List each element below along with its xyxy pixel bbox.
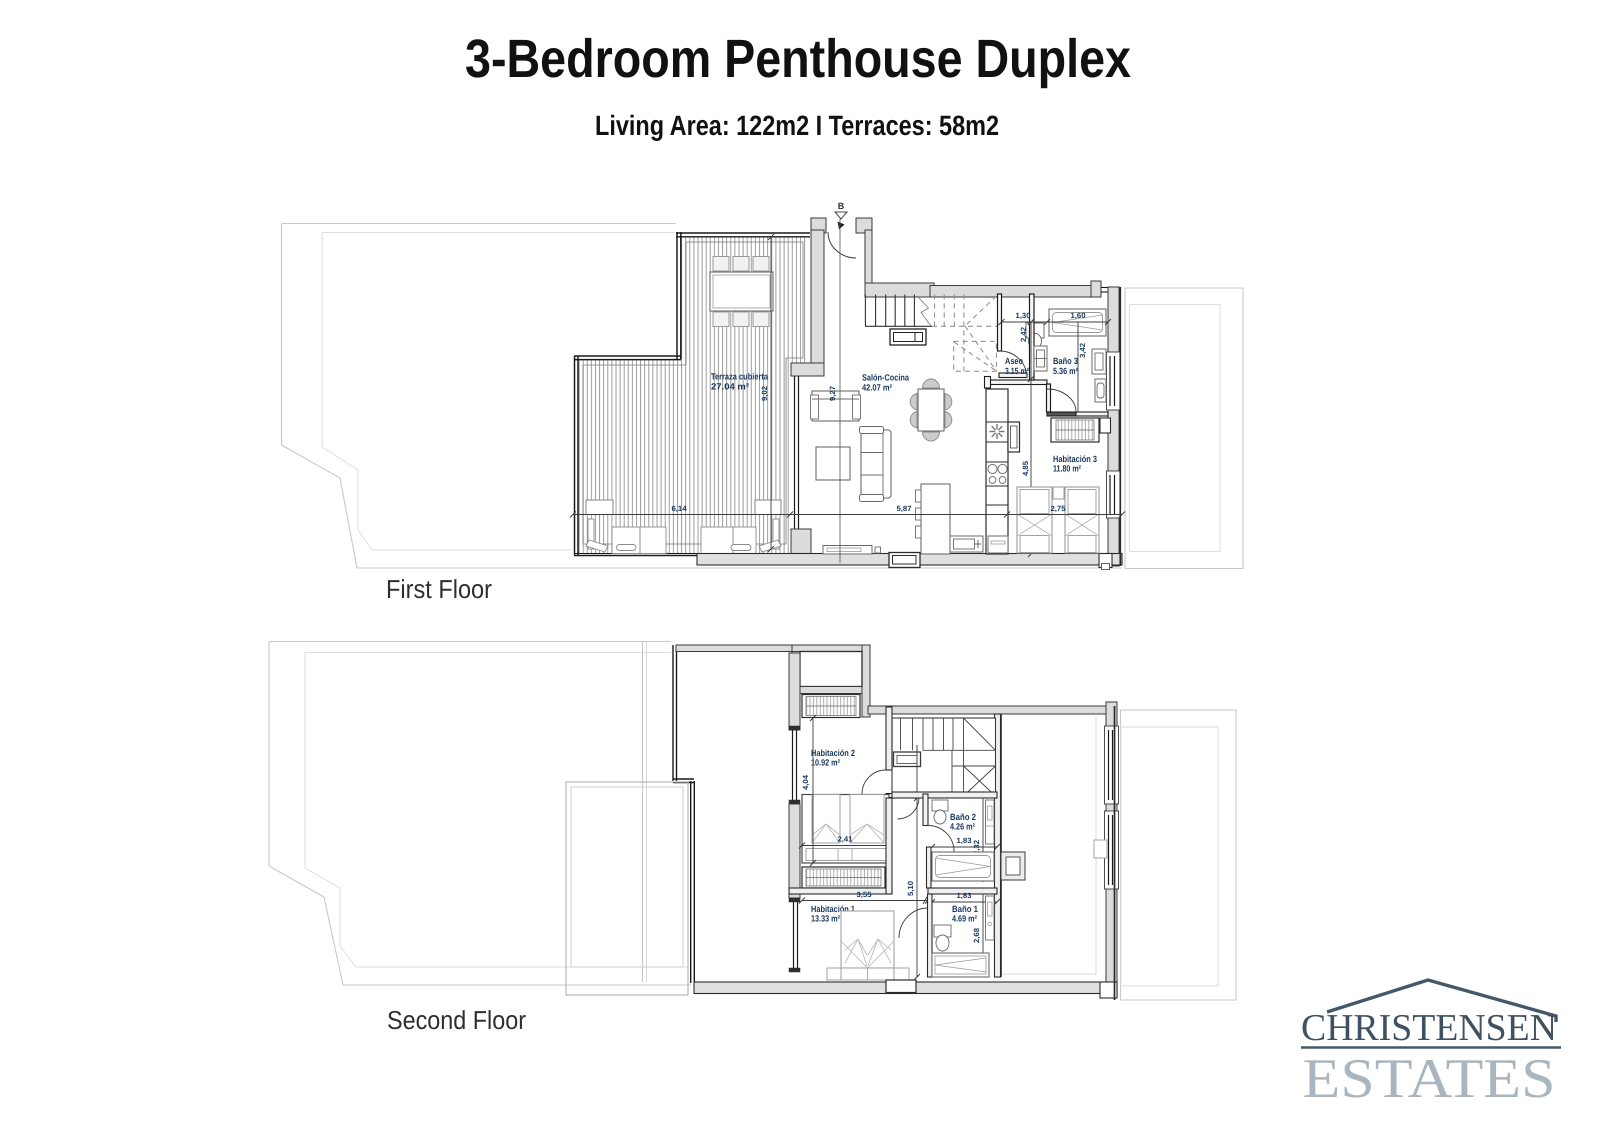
svg-text:4.69 m²: 4.69 m²	[952, 914, 977, 924]
svg-text:13.33 m²: 13.33 m²	[811, 914, 840, 924]
svg-text:ESTATES: ESTATES	[1303, 1048, 1556, 1110]
svg-text:B: B	[838, 201, 845, 211]
svg-text:3.15 m²: 3.15 m²	[1005, 366, 1029, 376]
svg-text:1,30: 1,30	[1016, 311, 1031, 320]
svg-text:1,83: 1,83	[957, 891, 972, 900]
svg-text:CHRISTENSEN: CHRISTENSEN	[1301, 1007, 1557, 1049]
svg-text:27.04 m²: 27.04 m²	[711, 382, 749, 392]
svg-text:9,02: 9,02	[760, 386, 769, 401]
svg-text:5.36 m²: 5.36 m²	[1053, 366, 1078, 376]
svg-text:Baño 2: Baño 2	[950, 812, 976, 822]
svg-text:Habitación 2: Habitación 2	[811, 748, 855, 758]
svg-text:First Floor: First Floor	[386, 574, 492, 604]
svg-text:11.80 m²: 11.80 m²	[1053, 464, 1081, 474]
svg-text:Salón-Cocina: Salón-Cocina	[862, 373, 910, 383]
svg-text:2,42: 2,42	[1019, 327, 1028, 342]
svg-text:Living Area: 122m2 I Terraces:: Living Area: 122m2 I Terraces: 58m2	[595, 110, 999, 141]
svg-text:4,85: 4,85	[1021, 460, 1030, 476]
svg-text:2,75: 2,75	[1051, 504, 1067, 513]
svg-text:Habitación 3: Habitación 3	[1053, 454, 1097, 464]
svg-text:Terraza cubierta: Terraza cubierta	[711, 372, 769, 382]
svg-text:42.07 m²: 42.07 m²	[862, 383, 892, 393]
svg-text:5,87: 5,87	[897, 504, 912, 513]
svg-text:Second Floor: Second Floor	[387, 1005, 526, 1035]
svg-text:1,83: 1,83	[957, 836, 972, 845]
svg-text:2,41: 2,41	[838, 835, 854, 844]
svg-text:Baño 1: Baño 1	[952, 904, 978, 914]
svg-text:5,10: 5,10	[906, 881, 915, 896]
svg-text:4.26 m²: 4.26 m²	[950, 822, 975, 832]
svg-text:Baño 3: Baño 3	[1053, 356, 1078, 366]
svg-text:Aseo: Aseo	[1005, 356, 1023, 366]
svg-text:1,60: 1,60	[1071, 311, 1086, 320]
svg-text:10.92 m²: 10.92 m²	[811, 758, 840, 768]
svg-text:3,42: 3,42	[1078, 343, 1087, 358]
svg-text:3-Bedroom Penthouse Duplex: 3-Bedroom Penthouse Duplex	[465, 29, 1131, 89]
svg-text:9,27: 9,27	[828, 386, 837, 401]
svg-text:6,14: 6,14	[672, 504, 688, 513]
svg-text:3,55: 3,55	[857, 890, 873, 899]
svg-text:2,68: 2,68	[972, 928, 981, 943]
svg-text:4,04: 4,04	[801, 774, 810, 790]
